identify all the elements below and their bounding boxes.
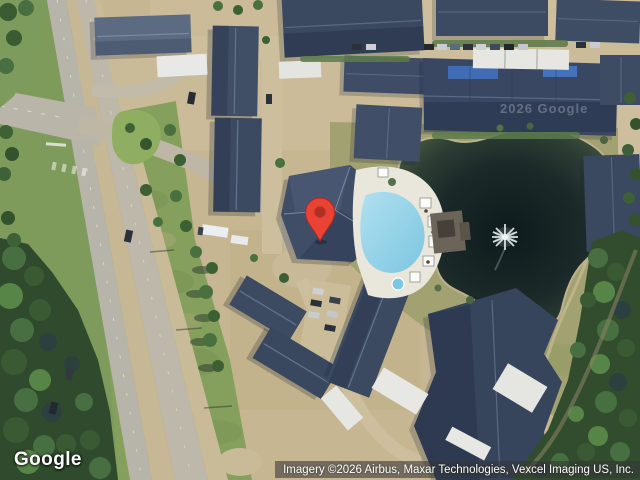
attribution-text: Imagery ©2026 Airbus, Maxar Technologies… bbox=[283, 464, 634, 476]
map-canvas[interactable]: 2026 Google Google Imagery ©2026 Airbus,… bbox=[0, 0, 640, 480]
apartment-building bbox=[432, 0, 548, 40]
google-logo[interactable]: Google bbox=[14, 449, 82, 471]
apartment-building bbox=[206, 26, 259, 121]
satellite-imagery bbox=[0, 0, 640, 480]
pin-center-dot bbox=[314, 206, 325, 217]
apartment-building bbox=[349, 104, 422, 166]
apartment-building-solar bbox=[419, 58, 618, 140]
apartment-building bbox=[89, 14, 191, 59]
apartment-building bbox=[555, 0, 640, 43]
attribution-bar: Imagery ©2026 Airbus, Maxar Technologies… bbox=[275, 461, 640, 478]
spa-pool bbox=[392, 278, 404, 290]
apartment-building bbox=[208, 118, 262, 217]
apartment-building bbox=[276, 0, 424, 62]
